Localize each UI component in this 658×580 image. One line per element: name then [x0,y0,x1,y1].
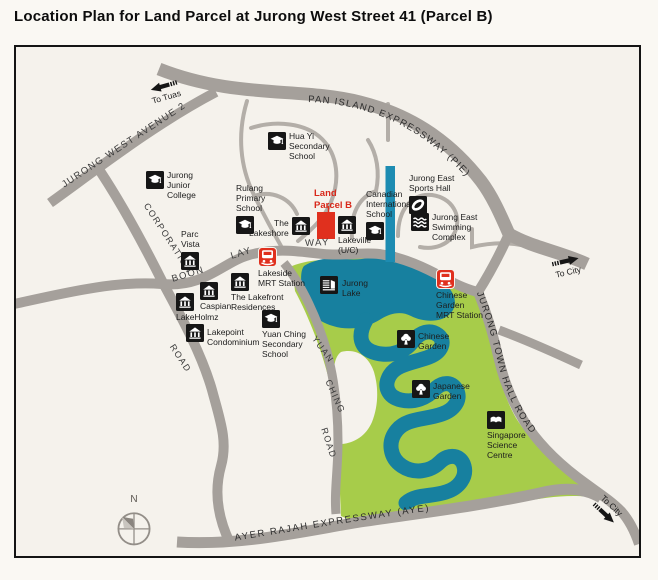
poi-label: The Lakeshore [249,219,289,239]
compass-north-label: N [130,494,137,505]
lake-icon [320,276,338,294]
science-icon [487,411,505,429]
poi-canadian-international-school: Canadian International School [366,190,413,240]
school-icon [366,222,384,240]
poi-label: LakeHolmz [176,313,219,323]
poi-label: Jurong East Sports Hall [409,174,454,194]
compass-icon [112,505,156,549]
compass: N [110,494,158,549]
poi-label: Jurong East Swimming Complex [432,213,477,243]
poi-chinese-garden-mrt-station: Chinese Garden MRT Station [436,269,483,321]
school-icon [268,132,286,150]
school-icon [146,171,164,189]
tree-icon [412,380,430,398]
map-container [14,45,641,558]
poi-the-lakefront-residences: The Lakefront Residences [231,273,283,313]
poi-label: Yuan Ching Secondary School [262,330,306,360]
poi-label: Hua Yi Secondary School [289,132,330,162]
poi-jurong-lake: Jurong Lake [320,276,368,299]
poi-label: Lakepoint Condominium [207,328,259,348]
mrt-icon [436,269,455,289]
school-icon [262,310,280,328]
poi-lakepoint-condominium: Lakepoint Condominium [186,324,259,348]
condo-icon [176,293,194,311]
land-parcel-b-label: Land Parcel B [314,188,352,212]
condo-icon [338,216,356,234]
poi-japanese-garden: Japanese Garden [412,380,470,402]
poi-hua-yi-secondary-school: Hua Yi Secondary School [268,132,330,162]
poi-label: Jurong Junior College [167,171,196,201]
poi-jurong-east-sports-hall: Jurong East Sports Hall [409,174,454,214]
road-label-way: WAY [305,237,330,249]
poi-label: Rulang Primary School [236,184,265,214]
poi-chinese-garden: Chinese Garden [397,330,449,352]
mrt-icon [258,247,277,267]
poi-parc-vista: Parc Vista [181,230,200,270]
poi-lakeholmz: LakeHolmz [176,293,219,323]
poi-label: Canadian International School [366,190,413,220]
poi-label: Parc Vista [181,230,200,250]
poi-label: Jurong Lake [342,279,368,299]
page-title: Location Plan for Land Parcel at Jurong … [14,8,646,25]
tree-icon [397,330,415,348]
condo-icon [186,324,204,342]
poi-jurong-east-swimming-complex: Jurong East Swimming Complex [411,213,477,243]
condo-icon [181,252,199,270]
poi-jurong-junior-college: Jurong Junior College [146,171,196,201]
poi-label: Singapore Science Centre [487,431,526,461]
poi-the-lakeshore: The Lakeshore [249,217,310,239]
poi-yuan-ching-secondary-school: Yuan Ching Secondary School [262,310,306,360]
poi-label: Chinese Garden MRT Station [436,291,483,321]
stadium-icon [409,196,427,214]
condo-icon [231,273,249,291]
poi-label: Japanese Garden [433,382,470,402]
poi-singapore-science-centre: Singapore Science Centre [487,411,526,461]
waves-icon [411,213,429,231]
condo-icon [292,217,310,235]
poi-label: Chinese Garden [418,332,449,352]
